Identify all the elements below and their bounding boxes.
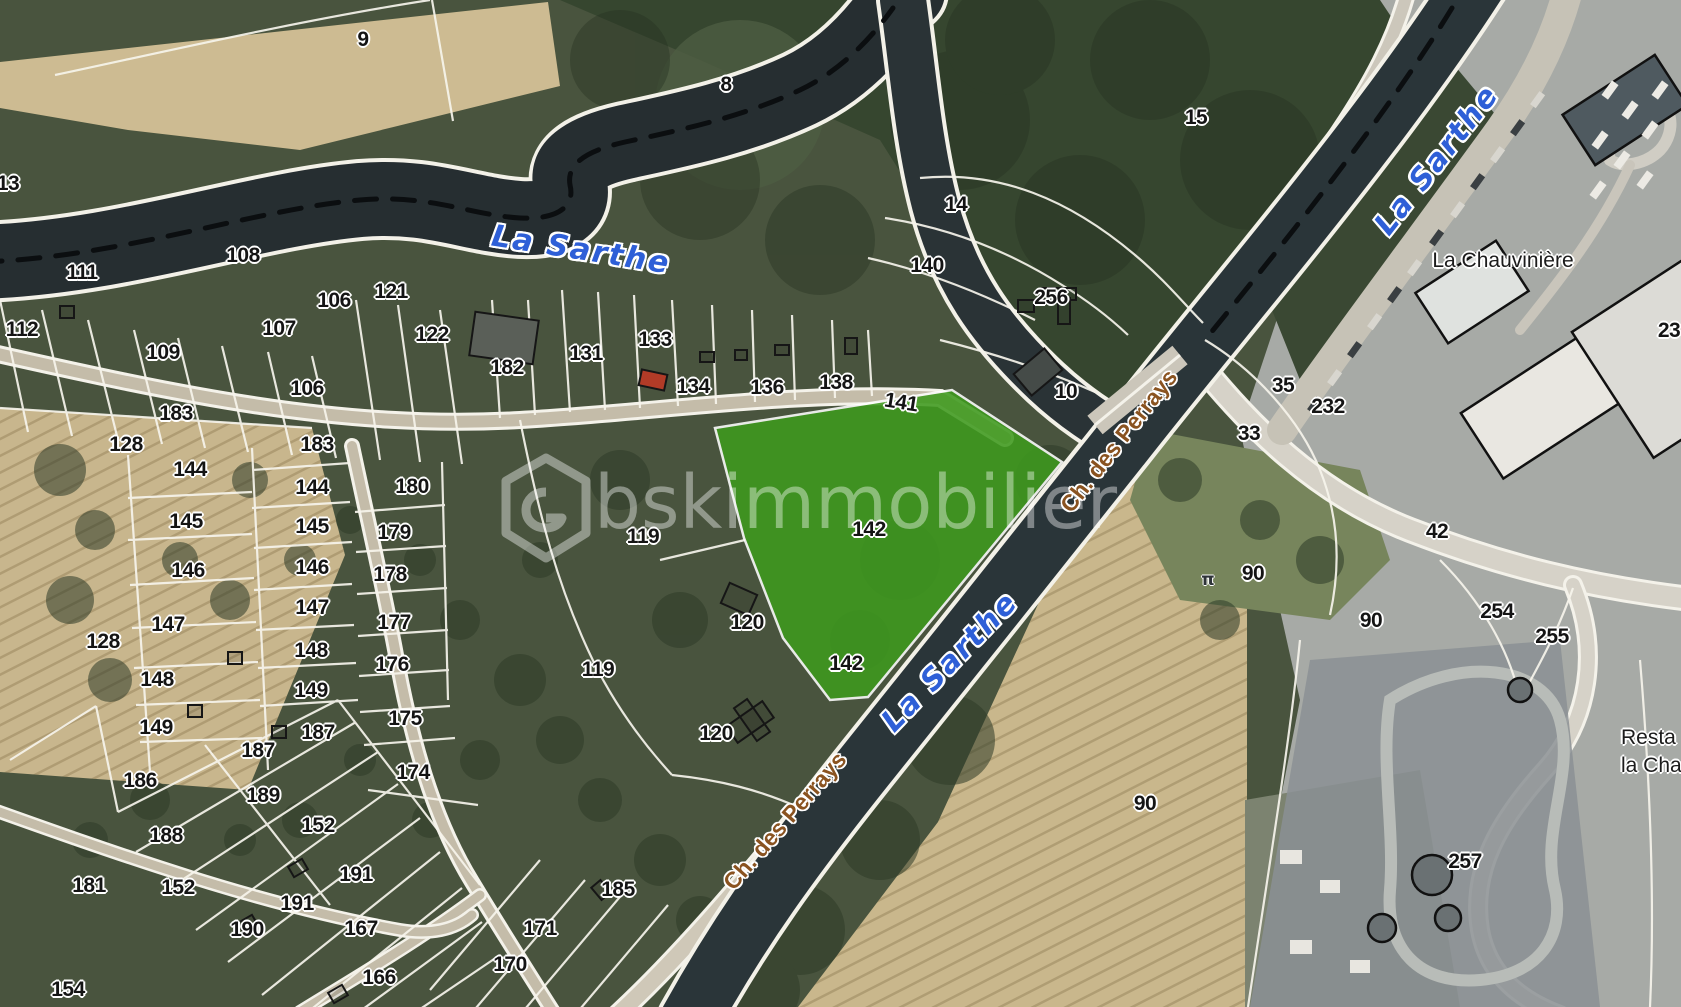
- picnic-table-icon: π: [1201, 570, 1214, 590]
- parcel-label: 170: [493, 953, 527, 977]
- parcel-label: 120: [730, 611, 764, 635]
- parcel-label: 106: [317, 289, 351, 313]
- parcel-label: 190: [230, 918, 264, 942]
- parcel-label: 185: [601, 878, 635, 902]
- parcel-label: 178: [373, 563, 407, 587]
- parcel-label: 106: [290, 377, 324, 401]
- parcel-label: 136: [750, 376, 784, 400]
- parcel-label: 142: [829, 652, 863, 676]
- parcel-label: 256: [1034, 286, 1068, 310]
- parcel-label: 147: [295, 596, 329, 620]
- parcel-label: 133: [638, 328, 672, 352]
- parcel-label: 255: [1535, 625, 1569, 649]
- parcel-label: 149: [139, 716, 173, 740]
- parcel-label: 145: [169, 510, 203, 534]
- parcel-label: 191: [339, 863, 373, 887]
- parcel-label: 146: [295, 556, 329, 580]
- parcel-label: 121: [374, 280, 408, 304]
- parcel-label: 146: [171, 559, 205, 583]
- parcel-label: 148: [140, 668, 174, 692]
- parcel-label: 154: [51, 978, 85, 1002]
- parcel-label: 186: [123, 769, 157, 793]
- parcel-label: 141: [883, 389, 920, 418]
- parcel-label: 112: [6, 318, 38, 342]
- parcel-label: 152: [161, 876, 195, 900]
- parcel-label: 188: [149, 824, 183, 848]
- parcel-label: 191: [280, 892, 314, 916]
- parcel-label: 183: [159, 402, 193, 426]
- parcel-label: 181: [72, 874, 106, 898]
- parcel-label: 128: [109, 433, 143, 457]
- parcel-label: 107: [262, 317, 296, 341]
- parcel-label: 183: [300, 433, 334, 457]
- parcel-label: 232: [1311, 395, 1345, 419]
- parcel-label: 120: [699, 722, 733, 746]
- parcel-label: 147: [151, 613, 185, 637]
- parcel-label: 182: [490, 356, 524, 380]
- parcel-label: 109: [146, 341, 180, 365]
- parcel-label: 257: [1448, 850, 1482, 874]
- parcel-label: 119: [627, 525, 659, 549]
- parcel-label: 149: [294, 679, 328, 703]
- parcel-label: 171: [523, 917, 557, 941]
- parcel-label: 134: [676, 375, 710, 399]
- parcel-label: 189: [246, 784, 280, 808]
- parcel-label: 179: [377, 521, 411, 545]
- parcel-label: 128: [86, 630, 120, 654]
- parcel-label: 176: [375, 653, 409, 677]
- parcel-label: 13: [0, 172, 19, 196]
- parcel-label: 148: [294, 639, 328, 663]
- river-label: La Sarthe: [489, 219, 673, 282]
- parcel-label: 23: [1658, 319, 1680, 343]
- parcel-label: 144: [295, 476, 329, 500]
- parcel-label: 144: [173, 458, 207, 482]
- parcel-label: 8: [720, 73, 731, 97]
- parcel-label: 35: [1272, 374, 1294, 398]
- parcel-label: 90: [1134, 792, 1156, 816]
- parcel-label: 111: [66, 261, 97, 285]
- parcel-label: 108: [226, 244, 260, 268]
- restaurant-label-line2: la Cha: [1621, 752, 1681, 780]
- satellite-map[interactable]: bskimmobilier 98151314108111140121106256…: [0, 0, 1681, 1007]
- river-label: La Sarthe: [875, 585, 1026, 739]
- parcel-label: 175: [388, 707, 422, 731]
- parcel-label: 122: [415, 323, 449, 347]
- parcel-label: 167: [344, 917, 378, 941]
- parcel-label: 140: [910, 254, 944, 278]
- road-label: Ch. des Perrays: [718, 747, 852, 896]
- parcel-label: 119: [582, 658, 614, 682]
- parcel-label: 187: [301, 721, 335, 745]
- parcel-label: 180: [395, 475, 429, 499]
- restaurant-label-line1: Resta: [1621, 724, 1681, 752]
- restaurant-label: Resta la Cha: [1621, 724, 1681, 781]
- parcel-label: 174: [396, 761, 430, 785]
- parcel-label: 9: [357, 28, 368, 52]
- parcel-label: 166: [362, 966, 396, 990]
- parcel-label: 138: [819, 371, 853, 395]
- parcel-label: 177: [377, 611, 411, 635]
- parcel-label: 254: [1480, 600, 1514, 624]
- parcel-label: 90: [1242, 562, 1264, 586]
- parcel-label: 10: [1055, 380, 1077, 404]
- parcel-label: 42: [1426, 520, 1448, 544]
- parcel-label: 131: [569, 342, 603, 366]
- parcel-label: 14: [945, 193, 967, 217]
- parcel-label: 142: [852, 518, 886, 542]
- river-label: La Sarthe: [1368, 78, 1507, 242]
- parcel-label: 33: [1238, 422, 1260, 446]
- parcel-label: 187: [241, 739, 275, 763]
- parcel-label: 145: [295, 515, 329, 539]
- parcel-label: 15: [1185, 106, 1207, 130]
- parcel-label: 152: [301, 814, 335, 838]
- place-label: La Chauvinière: [1432, 249, 1573, 273]
- map-labels-layer: 9815131410811114012110625610711212213310…: [0, 0, 1681, 1007]
- parcel-label: 90: [1360, 609, 1382, 633]
